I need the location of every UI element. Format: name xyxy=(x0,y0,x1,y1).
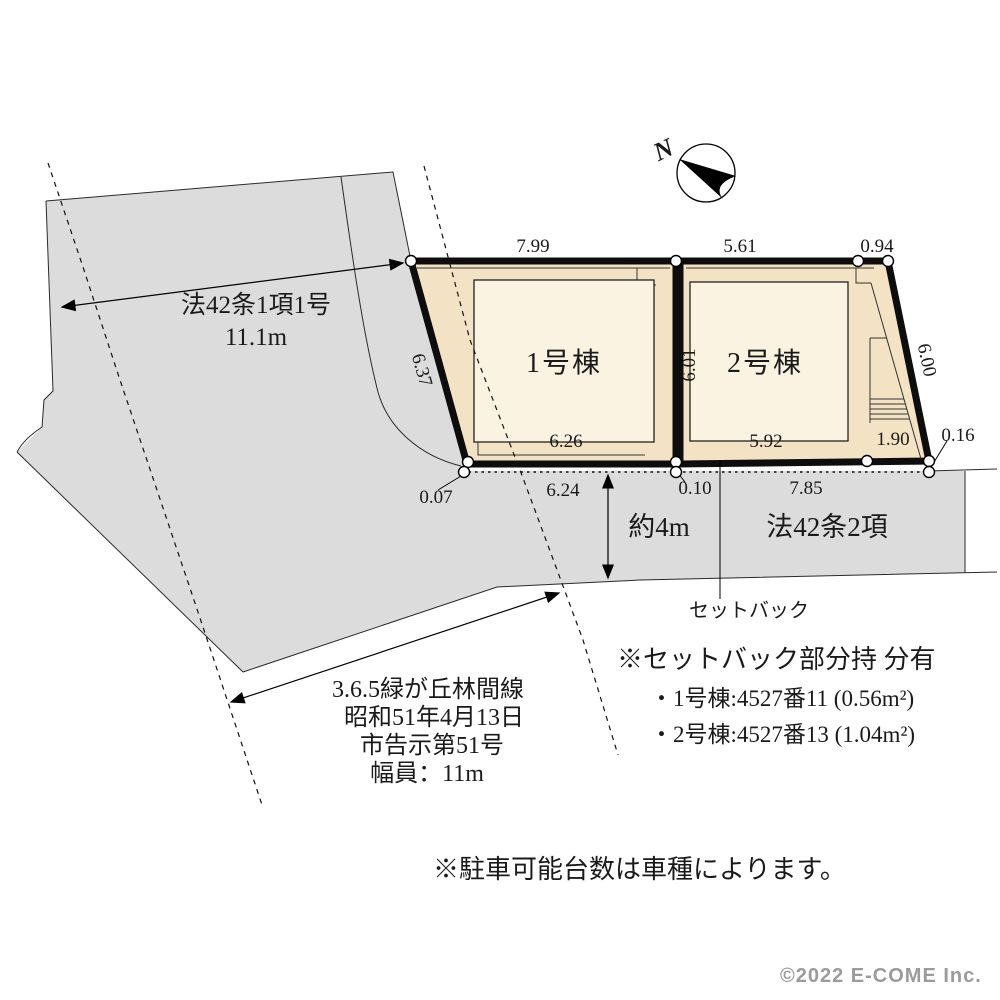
setback-note-item1: ・1号棟:4527番11 (0.56m²) xyxy=(650,686,914,711)
site-plan-diagram: N 7.99 5.61 0.94 6.37 6.01 6.00 1号棟 2号棟 … xyxy=(0,0,1000,1000)
dim-lot2-right: 6.00 xyxy=(913,342,940,379)
survey-point xyxy=(862,456,873,467)
north-compass: N xyxy=(648,132,736,202)
survey-point xyxy=(853,256,864,267)
dim-lot2-bottom-right: 1.90 xyxy=(876,429,909,450)
setback-note-title: ※セットバック部分持 分有 xyxy=(617,645,936,674)
dim-lot2-left: 6.01 xyxy=(679,348,700,381)
road-name-line4: 幅員：11m xyxy=(370,760,484,787)
dim-front-left: 6.24 xyxy=(546,480,580,501)
dim-front-mid: 0.10 xyxy=(678,478,711,499)
road-edge-front xyxy=(928,469,997,471)
survey-point xyxy=(883,256,894,267)
parking-note: ※駐車可能台数は車種によります。 xyxy=(433,855,846,884)
front-road-width: 約4m xyxy=(628,512,690,542)
north-label: N xyxy=(648,132,679,167)
survey-point xyxy=(671,256,682,267)
front-road-label: 法42条2項 xyxy=(766,512,888,542)
dim-lot2-top-right: 0.94 xyxy=(860,236,894,257)
setback-note-item2: ・2号棟:4527番13 (1.04m²) xyxy=(650,722,915,747)
road-name-line1: 3.6.5緑が丘林間線 xyxy=(332,676,524,703)
survey-point xyxy=(459,467,470,478)
side-road-width: 11.1m xyxy=(225,324,288,351)
lot2-name: 2号棟 xyxy=(727,347,803,379)
dim-lot2-top: 5.61 xyxy=(723,236,756,257)
survey-point xyxy=(671,467,682,478)
lot1-name: 1号棟 xyxy=(526,347,602,379)
setback-label: セットバック xyxy=(689,599,809,622)
survey-point xyxy=(406,256,417,267)
road-name-line2: 昭和51年4月13日 xyxy=(344,704,524,731)
survey-point xyxy=(924,467,935,478)
road-name-line3: 市告示第51号 xyxy=(360,732,504,759)
copyright: ©2022 E-COME Inc. xyxy=(780,965,982,987)
dim-lot1-top: 7.99 xyxy=(516,236,549,257)
site-plan-page: N 7.99 5.61 0.94 6.37 6.01 6.00 1号棟 2号棟 … xyxy=(0,0,1000,1000)
dim-lot1-bottom: 6.26 xyxy=(549,431,582,452)
dim-offset-left: 0.07 xyxy=(419,487,452,508)
dim-offset-right: 0.16 xyxy=(941,425,974,446)
dim-lot2-bottom: 5.92 xyxy=(749,431,782,452)
side-road-label: 法42条1項1号 xyxy=(181,291,331,319)
dim-front-right: 7.85 xyxy=(789,478,822,499)
survey-point xyxy=(924,456,935,467)
